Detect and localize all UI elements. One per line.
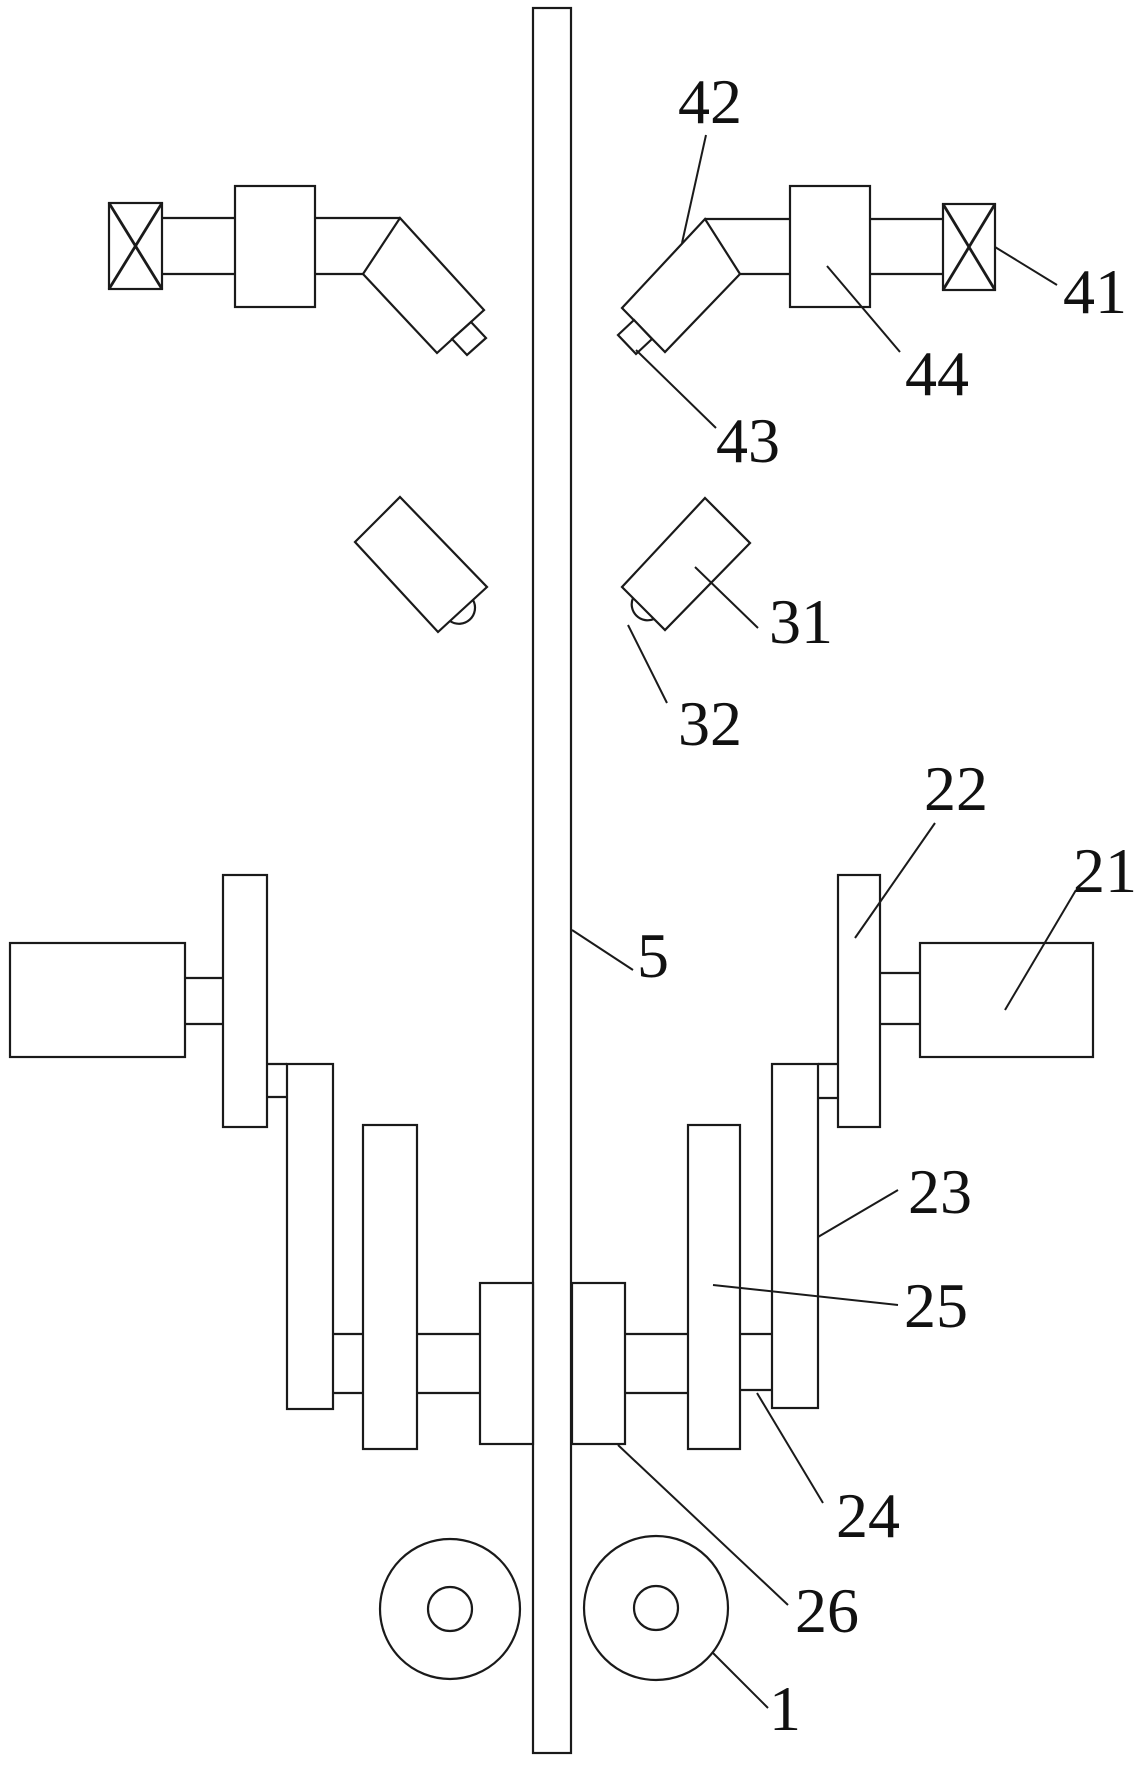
left-pump-box xyxy=(235,186,315,307)
web-strip xyxy=(533,8,571,1753)
label-21: 21 xyxy=(1073,835,1137,906)
label-42: 42 xyxy=(678,66,742,137)
left-inner-bracket xyxy=(363,1125,417,1449)
label-32: 32 xyxy=(678,688,742,759)
leader-43 xyxy=(636,350,716,428)
figure-canvas: 42 41 44 43 31 32 5 22 21 23 25 24 26 1 xyxy=(0,0,1146,1765)
left-roller-axle xyxy=(428,1587,472,1631)
label-31: 31 xyxy=(769,586,833,657)
left-camera-body xyxy=(355,497,487,632)
right-camera-body xyxy=(622,498,750,630)
leader-5 xyxy=(572,930,633,970)
left-spray-assembly xyxy=(109,186,486,355)
label-24: 24 xyxy=(836,1480,900,1551)
label-5: 5 xyxy=(637,920,669,991)
right-motor-box xyxy=(920,943,1093,1057)
leader-1 xyxy=(712,1652,768,1708)
right-clamp-block xyxy=(572,1283,625,1444)
left-motor-box xyxy=(10,943,185,1057)
leader-23 xyxy=(818,1190,898,1237)
label-1: 1 xyxy=(769,1673,801,1744)
leader-32 xyxy=(628,625,667,703)
label-26: 26 xyxy=(795,1575,859,1646)
leader-24 xyxy=(757,1393,823,1503)
label-25: 25 xyxy=(904,1270,968,1341)
right-pump-box xyxy=(790,186,870,307)
leader-41 xyxy=(995,247,1057,285)
web-strip-body xyxy=(533,8,571,1753)
right-spray-assembly xyxy=(618,186,995,354)
label-44: 44 xyxy=(905,338,969,409)
left-outer-bracket xyxy=(223,875,267,1127)
reference-numerals: 42 41 44 43 31 32 5 22 21 23 25 24 26 1 xyxy=(637,66,1137,1744)
right-tall-bracket xyxy=(772,1064,818,1408)
label-23: 23 xyxy=(908,1156,972,1227)
right-roller-axle xyxy=(634,1586,678,1630)
label-22: 22 xyxy=(924,753,988,824)
label-43: 43 xyxy=(716,405,780,476)
left-clamp-block xyxy=(480,1283,533,1444)
label-41: 41 xyxy=(1063,256,1127,327)
left-tall-bracket xyxy=(287,1064,333,1409)
leader-31 xyxy=(695,567,758,628)
